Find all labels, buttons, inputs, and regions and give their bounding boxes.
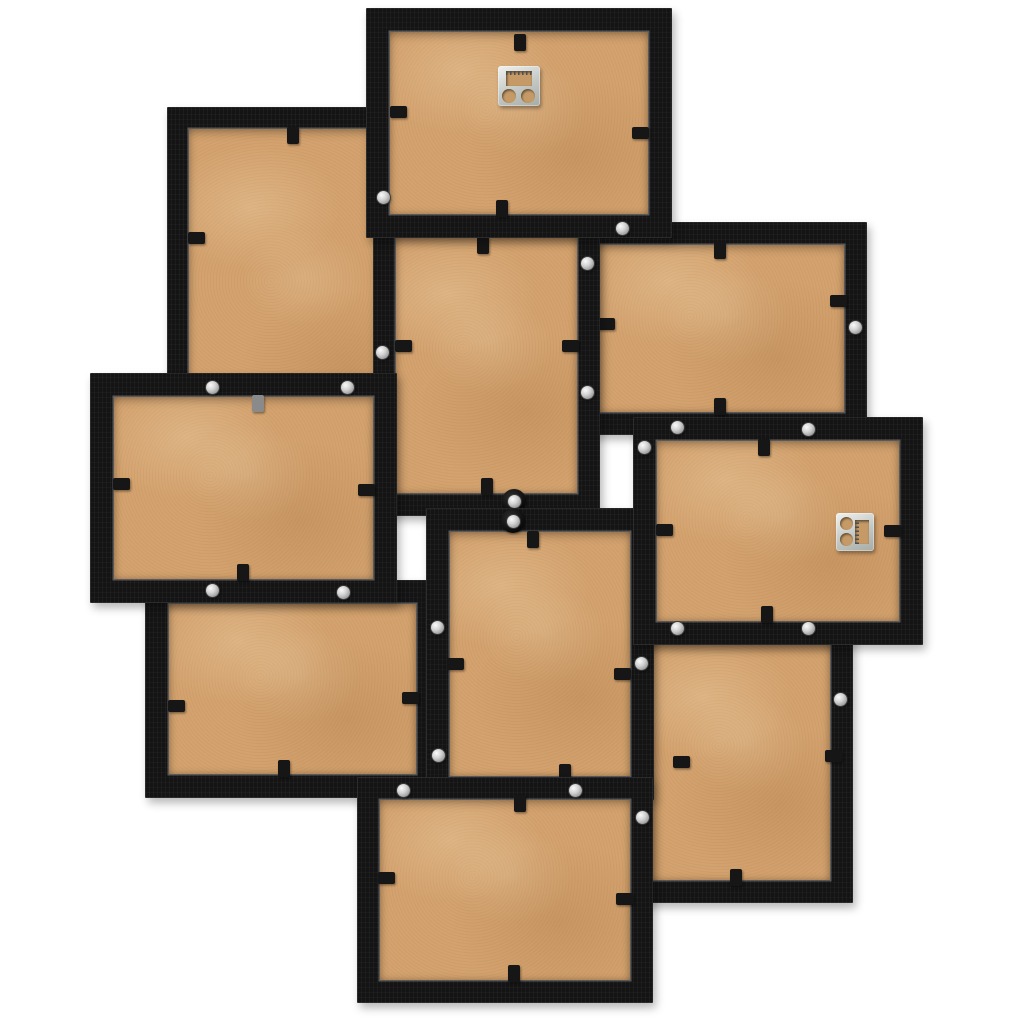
flexi-tab <box>825 750 842 762</box>
mounting-screw <box>397 784 410 797</box>
flexi-tab <box>673 756 690 768</box>
flexi-tab <box>714 242 726 259</box>
flexi-tab <box>830 295 847 307</box>
mounting-screw <box>507 515 520 528</box>
bracket-sawtooth <box>855 520 859 544</box>
flexi-tab <box>188 232 205 244</box>
photo-frame-back-top-center-landscape <box>366 8 672 238</box>
flexi-tab <box>632 127 649 139</box>
mdf-backing-board <box>390 32 648 214</box>
mounting-screw <box>834 693 847 706</box>
flexi-tab <box>527 531 539 548</box>
mdf-backing-board <box>396 238 577 493</box>
mounting-screw <box>376 346 389 359</box>
mdf-backing-board <box>169 604 416 774</box>
bracket-sawtooth <box>506 71 532 75</box>
mdf-backing-board <box>450 532 630 776</box>
photo-frame-back-upper-right-landscape <box>577 222 867 435</box>
flexi-tab <box>562 340 579 352</box>
flexi-tab <box>514 34 526 51</box>
flexi-tab <box>761 606 773 623</box>
flexi-tab <box>614 668 631 680</box>
photo-frame-back-center-lower-portrait <box>426 508 654 800</box>
flexi-tab <box>113 478 130 490</box>
mounting-screw <box>508 495 521 508</box>
flexi-tab <box>477 237 489 254</box>
mounting-screw <box>431 621 444 634</box>
mounting-screw <box>802 423 815 436</box>
photo-frame-back-middle-left-landscape <box>90 373 397 603</box>
mounting-screw <box>341 381 354 394</box>
mdf-backing-board <box>380 800 630 980</box>
hanging-bracket <box>836 513 874 551</box>
mounting-screw <box>206 381 219 394</box>
photo-frame-back-lower-right-portrait <box>630 622 853 903</box>
flexi-tab <box>656 524 673 536</box>
flexi-tab <box>481 478 493 495</box>
photo-frame-back-center-upper-portrait <box>373 215 600 516</box>
mounting-screw <box>636 811 649 824</box>
flexi-tab <box>884 525 901 537</box>
mounting-screw <box>671 421 684 434</box>
flexi-tab <box>730 869 742 886</box>
collage-frame-back-product-photo <box>0 0 1024 1024</box>
flexi-tab <box>395 340 412 352</box>
flexi-tab <box>508 965 520 982</box>
mounting-screw <box>581 386 594 399</box>
flexi-tab <box>237 564 249 581</box>
bracket-hole <box>502 89 516 103</box>
bracket-hole <box>840 533 853 546</box>
flexi-tab <box>390 106 407 118</box>
flexi-tab <box>496 200 508 217</box>
mounting-screw <box>638 441 651 454</box>
flexi-tab <box>447 658 464 670</box>
bracket-hole <box>521 89 535 103</box>
mounting-screw <box>377 191 390 204</box>
flexi-tab <box>402 692 419 704</box>
flexi-tab <box>278 760 290 777</box>
mdf-backing-board <box>600 245 844 412</box>
photo-frame-back-middle-right-landscape <box>633 417 923 645</box>
flexi-tab <box>252 395 264 412</box>
flexi-tab <box>758 439 770 456</box>
photo-frame-back-bottom-center-landscape <box>357 777 653 1003</box>
mounting-screw <box>616 222 629 235</box>
flexi-tab <box>378 872 395 884</box>
photo-frame-back-lower-left-landscape <box>145 580 440 798</box>
flexi-tab <box>358 484 375 496</box>
flexi-tab <box>287 127 299 144</box>
flexi-tab <box>598 318 615 330</box>
mounting-screw <box>802 622 815 635</box>
mounting-screw <box>432 749 445 762</box>
mounting-screw <box>337 586 350 599</box>
flexi-tab <box>616 893 633 905</box>
mounting-screw <box>206 584 219 597</box>
mounting-screw <box>671 622 684 635</box>
hanging-bracket <box>498 66 540 106</box>
bracket-hole <box>840 517 853 530</box>
flexi-tab <box>714 398 726 415</box>
flexi-tab <box>168 700 185 712</box>
mounting-screw <box>635 657 648 670</box>
mounting-screw <box>849 321 862 334</box>
flexi-tab <box>514 795 526 812</box>
mdf-backing-board <box>114 397 373 579</box>
mounting-screw <box>569 784 582 797</box>
mounting-screw <box>581 257 594 270</box>
